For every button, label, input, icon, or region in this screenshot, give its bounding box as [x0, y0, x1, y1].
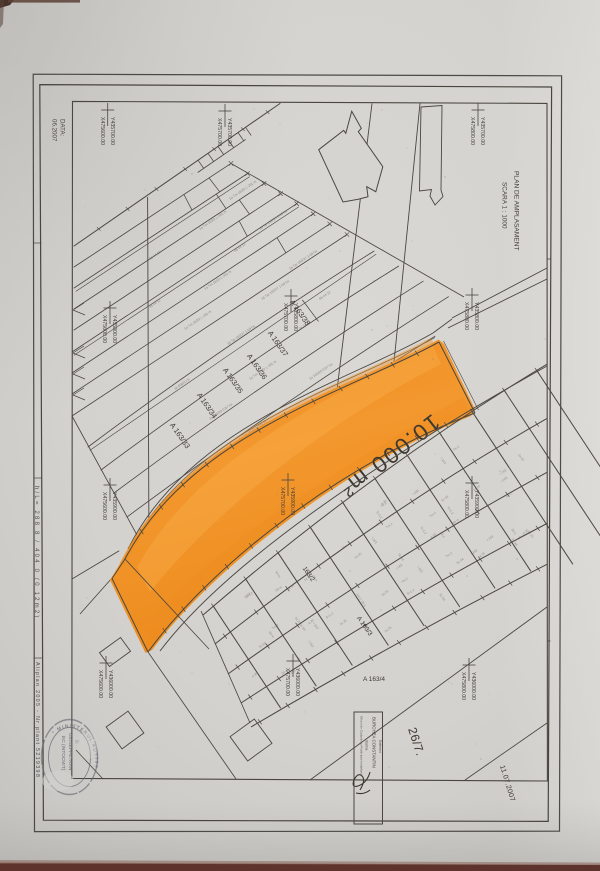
svg-text:Y435700.00: Y435700.00	[109, 117, 115, 145]
svg-text:Y435900.00: Y435900.00	[473, 490, 479, 518]
svg-text:Y436000.00: Y436000.00	[107, 670, 113, 698]
svg-text:X475700.00: X475700.00	[282, 303, 288, 331]
svg-text:Y435900.00: Y435900.00	[289, 487, 295, 515]
svg-text:PLAN DE AMPLASAMENT: PLAN DE AMPLASAMENT	[513, 171, 520, 251]
svg-text:EC (INTOCMIT): EC (INTOCMIT)	[60, 736, 66, 771]
svg-text:X475600.00: X475600.00	[97, 670, 103, 698]
svg-text:Oficiul de Cadastru şi Publici: Oficiul de Cadastru şi Publicitate Imobi…	[360, 716, 364, 775]
svg-text:X475800.00: X475800.00	[469, 117, 475, 145]
svg-text:06.2007: 06.2007	[51, 119, 58, 142]
svg-text:Y435900.00: Y435900.00	[111, 492, 117, 520]
svg-text:Slatina: Slatina	[365, 740, 369, 750]
svg-text:Y436000.00: Y436000.00	[294, 668, 300, 696]
svg-text:X475700.00: X475700.00	[279, 487, 285, 515]
svg-text:X475600.00: X475600.00	[101, 492, 107, 520]
svg-text:Y435800.00: Y435800.00	[292, 303, 298, 331]
svg-text:Y435700.00: Y435700.00	[479, 117, 485, 145]
svg-text:X475800.00: X475800.00	[463, 490, 469, 518]
svg-text:X475700.00: X475700.00	[284, 668, 290, 696]
svg-text:Y435700.00: Y435700.00	[226, 118, 232, 146]
svg-text:Aliplan 2005 - Nr plant 521: Aliplan 2005 - Nr plant 5219398	[34, 662, 40, 778]
svg-text:X475600.00: X475600.00	[101, 315, 107, 343]
svg-text:SCARA 1 : 1000: SCARA 1 : 1000	[501, 182, 508, 229]
svg-text:Y435800.00: Y435800.00	[111, 315, 117, 343]
svg-text:A 163/4: A 163/4	[363, 676, 385, 683]
svg-text:BURCHEA CONSTANTIN: BURCHEA CONSTANTIN	[372, 717, 377, 768]
svg-text:X475800.00: X475800.00	[463, 302, 469, 330]
svg-text:Referent: Referent	[378, 740, 382, 753]
svg-text:Y435800.00: Y435800.00	[473, 302, 479, 330]
svg-text:Y436000.00: Y436000.00	[470, 672, 476, 700]
svg-text:X475800.00: X475800.00	[460, 672, 466, 700]
svg-text:GIUSEPPE?RAN: GIUSEPPE?RAN	[67, 733, 73, 771]
svg-text:X475600.00: X475600.00	[99, 117, 105, 145]
svg-text:DATA:: DATA:	[59, 119, 66, 137]
svg-text:X475700.00: X475700.00	[216, 118, 222, 146]
svg-text:h/L= 288 8 / 404 0 (0 12m2): h/L= 288 8 / 404 0 (0 12m2)	[33, 486, 39, 620]
